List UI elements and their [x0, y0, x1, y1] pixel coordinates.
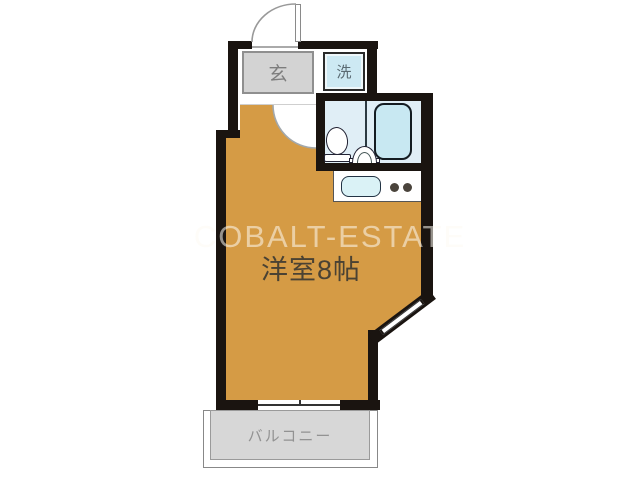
- entrance-threshold: [252, 46, 298, 48]
- wall: [298, 41, 378, 49]
- entrance-door-leaf-icon: [295, 4, 301, 42]
- wall: [228, 41, 238, 138]
- stove-burner-icon: [403, 183, 412, 192]
- entrance-label: 玄: [268, 59, 287, 86]
- balcony-label: バルコニー: [248, 425, 333, 446]
- entrance-door-swing-icon: [252, 4, 296, 42]
- floorplan-canvas: 玄 洗 バルコニー 洋室8帖 COBALT-ESTATE: [0, 0, 640, 480]
- wall: [316, 93, 433, 101]
- wall: [316, 163, 433, 171]
- entrance-area: 玄: [242, 51, 314, 94]
- wall: [367, 41, 377, 101]
- window-center-tick: [299, 400, 301, 405]
- stove-burner-icon: [390, 183, 399, 192]
- sink-icon: [341, 176, 381, 197]
- washing-machine-icon: 洗: [323, 52, 365, 91]
- balcony-area: バルコニー: [210, 410, 370, 460]
- watermark: COBALT-ESTATE: [80, 219, 580, 255]
- entrance-step-strip: [240, 95, 316, 105]
- wall: [421, 93, 433, 300]
- toilet-base: [324, 154, 351, 162]
- sliding-window-icon: [256, 400, 342, 410]
- bathtub-icon: [374, 103, 412, 160]
- washer-label: 洗: [336, 61, 351, 82]
